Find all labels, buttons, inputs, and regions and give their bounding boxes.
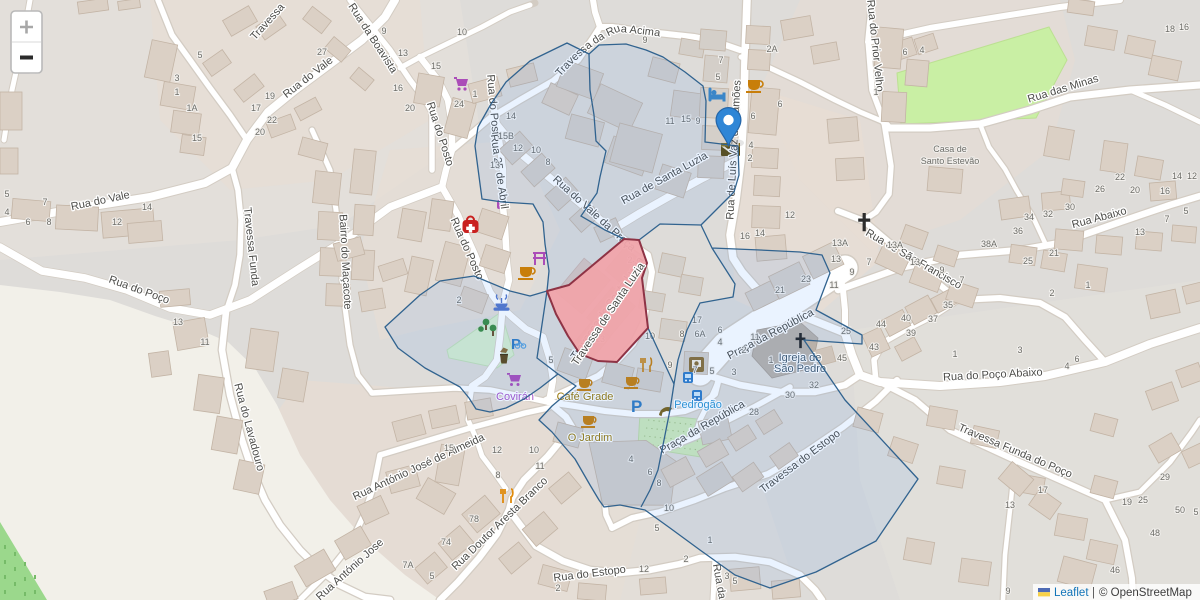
svg-text:21: 21 xyxy=(1049,248,1059,258)
svg-text:1: 1 xyxy=(174,87,179,97)
svg-text:13: 13 xyxy=(1005,500,1015,510)
svg-text:25: 25 xyxy=(1138,495,1148,505)
svg-text:7: 7 xyxy=(1164,214,1169,224)
svg-text:34: 34 xyxy=(1024,212,1034,222)
svg-text:4: 4 xyxy=(748,140,753,150)
svg-text:Leaflet: Leaflet xyxy=(1054,587,1089,599)
svg-text:48: 48 xyxy=(1150,528,1160,538)
svg-text:1: 1 xyxy=(472,89,477,99)
svg-text:9: 9 xyxy=(1005,586,1010,596)
svg-text:13: 13 xyxy=(1135,227,1145,237)
svg-text:6: 6 xyxy=(902,47,907,57)
svg-text:32: 32 xyxy=(1043,209,1053,219)
svg-text:36: 36 xyxy=(1013,226,1023,236)
svg-text:9: 9 xyxy=(667,360,672,370)
svg-text:7: 7 xyxy=(866,257,871,267)
svg-text:19: 19 xyxy=(265,91,275,101)
svg-text:12: 12 xyxy=(112,217,122,227)
svg-text:20: 20 xyxy=(405,103,415,113)
svg-text:50: 50 xyxy=(1175,505,1185,515)
svg-text:35: 35 xyxy=(943,300,953,310)
svg-text:43: 43 xyxy=(869,342,879,352)
svg-text:5: 5 xyxy=(1183,206,1188,216)
svg-text:16: 16 xyxy=(1160,186,1170,196)
svg-text:19: 19 xyxy=(1122,497,1132,507)
svg-text:20: 20 xyxy=(255,127,265,137)
svg-text:45: 45 xyxy=(837,353,847,363)
svg-text:9: 9 xyxy=(939,265,944,275)
svg-text:15: 15 xyxy=(444,443,454,453)
svg-text:22: 22 xyxy=(1115,172,1125,182)
svg-text:11: 11 xyxy=(829,280,838,290)
svg-text:15: 15 xyxy=(192,133,202,143)
svg-text:14: 14 xyxy=(755,228,765,238)
svg-text:39: 39 xyxy=(906,328,916,338)
svg-text:12: 12 xyxy=(639,564,649,574)
svg-text:4: 4 xyxy=(4,207,9,217)
svg-text:46: 46 xyxy=(1110,565,1120,575)
svg-text:3: 3 xyxy=(174,73,179,83)
svg-text:8: 8 xyxy=(495,470,500,480)
svg-text:14: 14 xyxy=(142,202,152,212)
svg-text:2: 2 xyxy=(1049,288,1054,298)
svg-text:38A: 38A xyxy=(981,239,997,249)
svg-text:26: 26 xyxy=(1095,184,1105,194)
svg-text:5: 5 xyxy=(1193,507,1198,517)
svg-text:5: 5 xyxy=(429,571,434,581)
svg-text:14: 14 xyxy=(1172,171,1182,181)
svg-text:1: 1 xyxy=(952,349,957,359)
svg-text:20: 20 xyxy=(1130,185,1140,195)
svg-text:13A: 13A xyxy=(832,238,848,248)
svg-text:25: 25 xyxy=(1023,256,1033,266)
svg-text:6: 6 xyxy=(1074,354,1079,364)
svg-text:6: 6 xyxy=(25,217,30,227)
svg-text:13A: 13A xyxy=(887,240,903,250)
svg-text:7: 7 xyxy=(42,197,47,207)
svg-text:11: 11 xyxy=(200,337,209,347)
svg-text:2: 2 xyxy=(747,153,752,163)
svg-text:13: 13 xyxy=(173,317,183,327)
svg-text:17: 17 xyxy=(251,103,261,113)
svg-text:37: 37 xyxy=(928,314,938,324)
svg-text:© OpenStreetMap: © OpenStreetMap xyxy=(1099,587,1192,599)
svg-text:16: 16 xyxy=(1179,22,1189,32)
svg-text:8: 8 xyxy=(679,329,684,339)
svg-text:13: 13 xyxy=(831,254,841,264)
svg-text:9: 9 xyxy=(642,35,647,45)
svg-text:7: 7 xyxy=(718,55,723,65)
svg-text:6: 6 xyxy=(750,111,755,121)
svg-text:5: 5 xyxy=(715,72,720,82)
svg-text:12: 12 xyxy=(1187,171,1197,181)
svg-text:3: 3 xyxy=(1017,345,1022,355)
svg-text:7: 7 xyxy=(959,275,964,285)
svg-text:1: 1 xyxy=(1085,280,1090,290)
svg-text:1A: 1A xyxy=(186,103,197,113)
svg-text:29: 29 xyxy=(1160,472,1170,482)
svg-text:1: 1 xyxy=(873,87,878,97)
svg-text:13: 13 xyxy=(398,48,408,58)
svg-text:5: 5 xyxy=(654,523,659,533)
svg-text:74: 74 xyxy=(441,537,451,547)
svg-text:|: | xyxy=(1092,587,1095,599)
svg-text:12: 12 xyxy=(492,445,502,455)
svg-text:10: 10 xyxy=(529,445,539,455)
svg-text:8: 8 xyxy=(46,217,51,227)
svg-text:44: 44 xyxy=(876,319,886,329)
svg-text:2: 2 xyxy=(683,554,688,564)
svg-text:4: 4 xyxy=(919,45,924,55)
svg-text:2A: 2A xyxy=(766,44,777,54)
svg-text:11: 11 xyxy=(535,461,544,471)
svg-text:27: 27 xyxy=(317,47,327,57)
svg-text:Santo Estevão: Santo Estevão xyxy=(921,156,980,166)
svg-text:16: 16 xyxy=(393,83,403,93)
svg-text:5: 5 xyxy=(732,576,737,586)
svg-text:6: 6 xyxy=(777,99,782,109)
svg-text:5: 5 xyxy=(197,50,202,60)
svg-text:40: 40 xyxy=(901,313,911,323)
svg-text:7A: 7A xyxy=(402,560,413,570)
svg-text:12: 12 xyxy=(785,210,795,220)
svg-text:24: 24 xyxy=(454,99,464,109)
svg-text:Casa de: Casa de xyxy=(933,144,967,154)
svg-text:2: 2 xyxy=(555,583,560,593)
svg-text:78: 78 xyxy=(469,514,479,524)
svg-text:15: 15 xyxy=(431,61,441,71)
svg-text:10: 10 xyxy=(457,27,467,37)
svg-text:5: 5 xyxy=(4,189,9,199)
svg-text:3: 3 xyxy=(724,571,729,581)
svg-text:17: 17 xyxy=(1038,485,1048,495)
svg-text:16: 16 xyxy=(740,231,750,241)
svg-text:4: 4 xyxy=(1064,361,1069,371)
svg-text:9: 9 xyxy=(849,267,854,277)
svg-text:22: 22 xyxy=(267,115,277,125)
svg-text:13: 13 xyxy=(910,257,920,267)
svg-text:30: 30 xyxy=(1065,202,1075,212)
svg-text:18: 18 xyxy=(1165,24,1175,34)
svg-text:9: 9 xyxy=(381,26,386,36)
